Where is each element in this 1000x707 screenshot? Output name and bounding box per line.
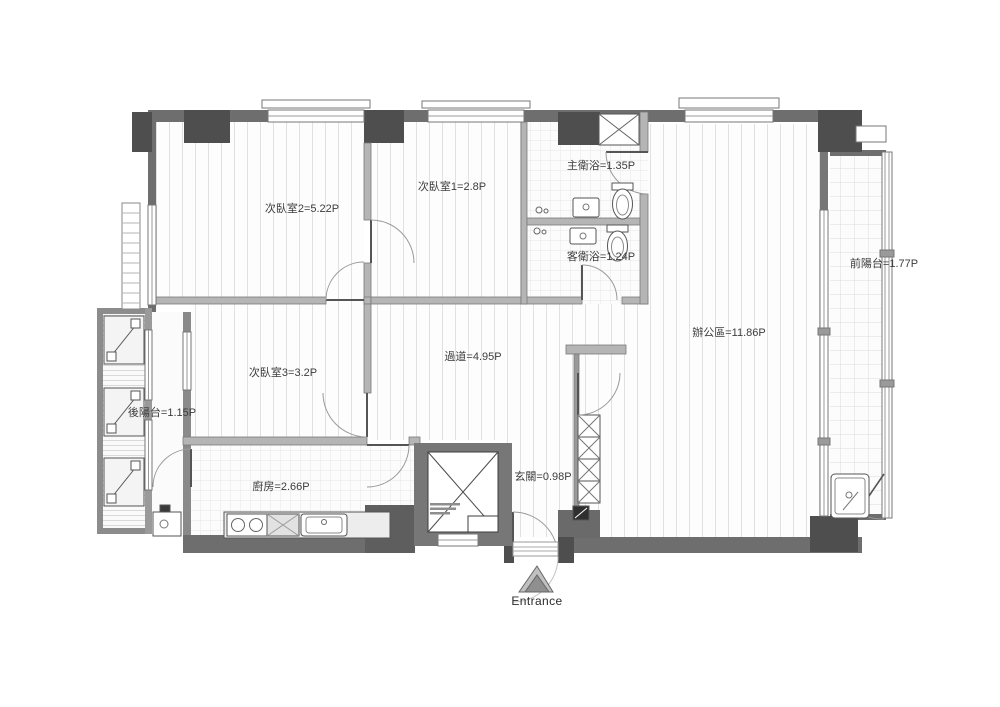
window-mullion — [880, 250, 894, 257]
wall-bath-right-upper — [640, 112, 648, 152]
window-balcony-outer — [882, 152, 892, 518]
window-mullion — [818, 328, 830, 335]
wall-kitchen-top-left — [183, 437, 367, 445]
bedroom1-floor — [371, 122, 521, 304]
wall-corner — [364, 297, 371, 304]
wall-bed2-bed1-upper — [364, 143, 371, 220]
label-bedroom2: 次臥室2=5.22P — [265, 201, 339, 215]
floor-plan: 次臥室2=5.22P 次臥室1=2.8P 主衛浴=1.35P 客衛浴=1.24P… — [0, 0, 1000, 707]
label-corridor: 過道=4.95P — [444, 349, 501, 363]
elevator — [414, 443, 512, 546]
toilet-master — [612, 183, 633, 219]
rear-balcony-bottom-wall — [97, 528, 152, 534]
label-rear-balcony: 後陽台=1.15P — [128, 405, 196, 419]
elevator-note-line — [430, 503, 460, 506]
balcony-top-glass — [856, 126, 886, 142]
ac-unit — [104, 458, 144, 506]
label-front-balcony: 前陽台=1.77P — [850, 256, 918, 270]
office-balcony-wall-top — [820, 152, 828, 210]
label-master-bath: 主衛浴=1.35P — [567, 159, 635, 172]
elevator-note-line — [430, 508, 456, 511]
floor-plan-svg: 次臥室2=5.22P 次臥室1=2.8P 主衛浴=1.35P 客衛浴=1.24P… — [0, 0, 1000, 707]
wall-corridor-top-left — [156, 297, 326, 304]
entry-stub-right — [558, 537, 574, 563]
entrance-marker — [519, 566, 553, 592]
window-mullion — [818, 438, 830, 445]
wall-bath-right-lower — [640, 194, 648, 304]
pipe-shaft — [599, 114, 639, 145]
louver — [122, 203, 140, 309]
wall-bed1-bath — [521, 122, 527, 304]
ac-unit — [104, 316, 144, 364]
laundry-sink — [831, 474, 869, 518]
label-bedroom3: 次臥室3=3.2P — [249, 365, 317, 379]
window-sill — [422, 101, 530, 108]
corridor-upper-floor — [371, 304, 648, 345]
elevator-notch — [468, 516, 498, 532]
elevator-note-line — [430, 512, 450, 515]
column — [132, 112, 152, 152]
front-balcony-floor — [830, 152, 886, 516]
sink-master — [573, 198, 599, 217]
wall-bed1-bottom — [371, 297, 521, 304]
label-guest-bath: 客衛浴=1.24P — [567, 249, 635, 263]
wall-corridor-bed3 — [364, 304, 371, 393]
label-office: 辦公區=11.86P — [692, 325, 765, 339]
label-bedroom1: 次臥室1=2.8P — [418, 179, 486, 193]
column — [184, 110, 230, 143]
sink-guest — [570, 228, 596, 244]
column — [818, 110, 862, 152]
window-mullion — [880, 380, 894, 387]
kitchen-counter — [224, 512, 390, 538]
column — [558, 112, 600, 145]
wall-corridor-stub — [566, 345, 626, 354]
label-kitchen: 廚房=2.66P — [252, 479, 309, 493]
column — [364, 110, 404, 143]
window-sill — [679, 98, 779, 108]
entrance-threshold — [513, 542, 558, 556]
column — [810, 516, 858, 552]
rear-balcony-outer-wall — [97, 308, 103, 534]
window-sill — [262, 100, 370, 108]
label-foyer: 玄關=0.98P — [514, 469, 571, 483]
label-entrance: Entrance — [511, 594, 562, 608]
utility-floor — [152, 312, 183, 535]
wall-bath-bottom-left — [521, 297, 582, 304]
